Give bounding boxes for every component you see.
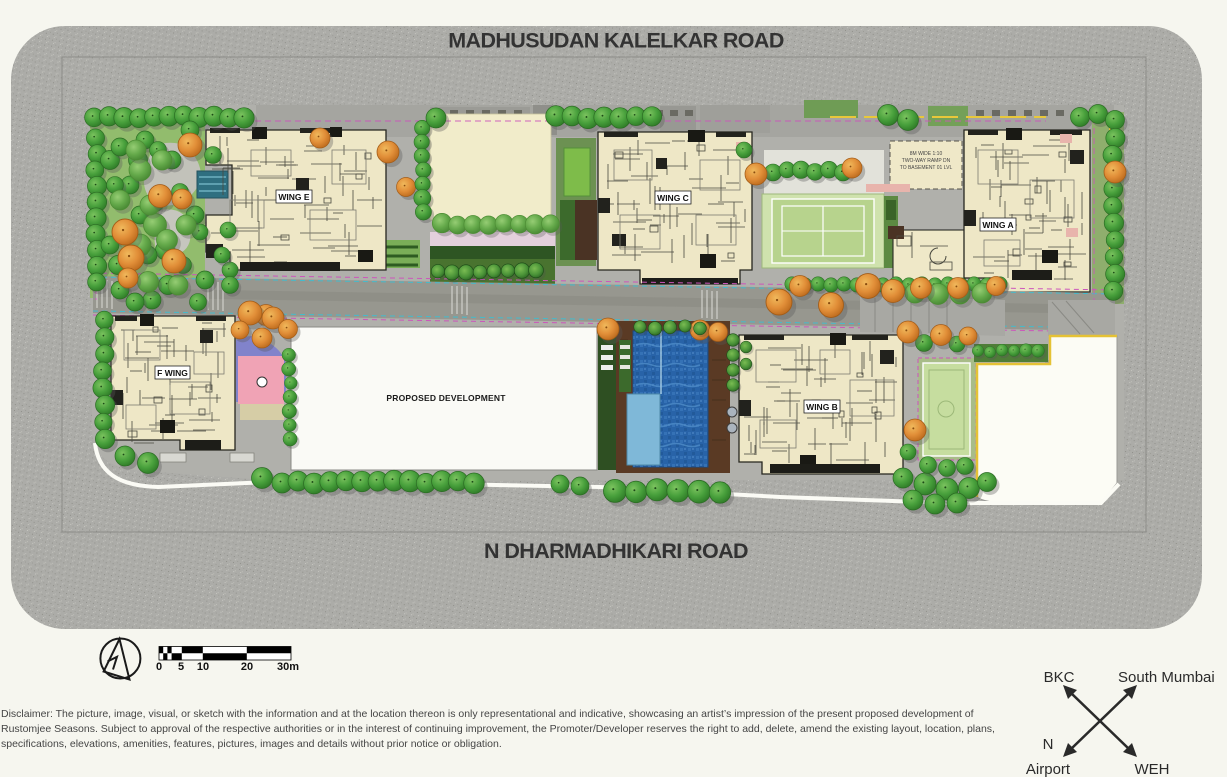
svg-text:30m: 30m xyxy=(277,661,299,673)
svg-text:WEH: WEH xyxy=(1135,761,1170,777)
svg-text:20: 20 xyxy=(241,661,253,673)
svg-text:South Mumbai: South Mumbai xyxy=(1118,669,1215,686)
svg-text:F WING: F WING xyxy=(157,368,188,378)
svg-text:TWO-WAY RAMP DN: TWO-WAY RAMP DN xyxy=(902,158,951,164)
svg-text:0: 0 xyxy=(156,661,162,673)
svg-text:WING C: WING C xyxy=(657,193,689,203)
svg-text:N: N xyxy=(1043,736,1054,753)
svg-text:specifications, elevations, am: specifications, elevations, amenities, f… xyxy=(1,738,502,750)
svg-text:Airport: Airport xyxy=(1026,761,1071,777)
svg-text:N DHARMADHIKARI ROAD: N DHARMADHIKARI ROAD xyxy=(484,539,748,563)
svg-text:BKC: BKC xyxy=(1044,669,1075,686)
svg-text:WING A: WING A xyxy=(982,220,1013,230)
svg-text:TO BASEMENT 01 LVL: TO BASEMENT 01 LVL xyxy=(900,165,953,171)
svg-text:Rustomjee Seasons. Subject to: Rustomjee Seasons. Subject to approval o… xyxy=(1,723,995,735)
svg-text:WING B: WING B xyxy=(806,402,838,412)
svg-text:5: 5 xyxy=(178,661,184,673)
svg-text:10: 10 xyxy=(197,661,209,673)
svg-text:8M WIDE 1:10: 8M WIDE 1:10 xyxy=(910,151,943,157)
svg-text:WING E: WING E xyxy=(278,192,309,202)
svg-text:Disclaimer: The picture, image: Disclaimer: The picture, image, visual, … xyxy=(1,708,974,720)
svg-text:MADHUSUDAN KALELKAR ROAD: MADHUSUDAN KALELKAR ROAD xyxy=(448,29,784,53)
svg-text:PROPOSED DEVELOPMENT: PROPOSED DEVELOPMENT xyxy=(386,393,506,403)
